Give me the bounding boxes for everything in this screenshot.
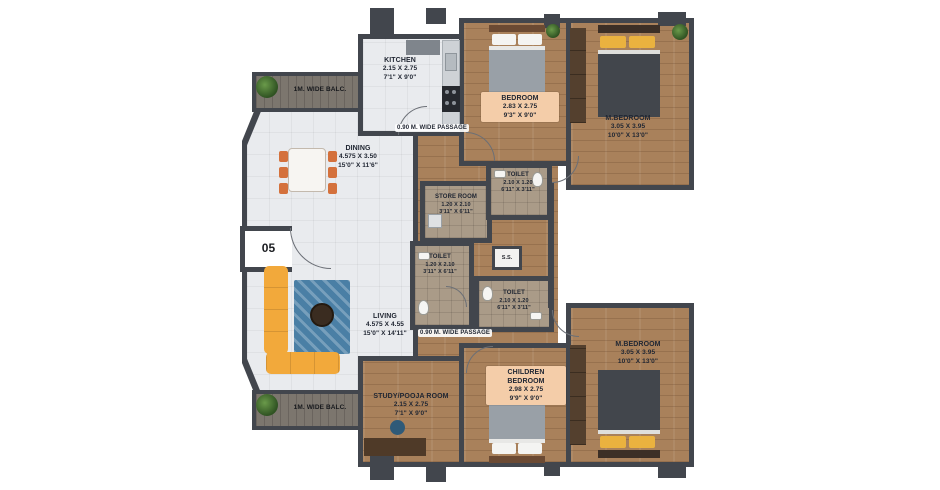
bed-headboard	[489, 25, 545, 32]
room-dim-imperial: 9'3" X 9'0"	[484, 112, 556, 120]
room-dim-imperial: 6'11" X 3'11"	[490, 187, 546, 194]
room-dim-metric: 2.98 X 2.75	[489, 386, 563, 394]
wall-stub	[370, 8, 394, 38]
room-dim-imperial: 6'11" X 3'11"	[486, 305, 542, 312]
room-dim-imperial: 7'1" X 9'0"	[360, 410, 462, 418]
coffee-table	[310, 303, 334, 327]
bed-headboard	[598, 25, 660, 33]
study-chair	[390, 420, 405, 435]
kitchen-appliance	[406, 40, 440, 55]
room-dim-metric: 1.20 X 2.10	[412, 262, 468, 269]
room-name: TOILET	[412, 254, 468, 262]
sofa	[264, 266, 288, 354]
label-toilet-top: TOILET 2.10 X 1.20 6'11" X 3'11"	[490, 172, 546, 194]
wall-segment	[548, 183, 554, 308]
wall-stub	[544, 462, 560, 476]
burner-icon	[445, 101, 449, 105]
floor-plan-canvas: S.S. 05	[0, 0, 940, 490]
burner-icon	[452, 90, 456, 94]
room-name: BEDROOM	[484, 94, 556, 103]
pillow	[629, 436, 655, 448]
room-name: LIVING	[348, 312, 422, 321]
bed-headboard	[598, 450, 660, 458]
dining-chair	[279, 151, 288, 162]
pillow	[518, 34, 542, 45]
room-name: M.BEDROOM	[588, 114, 668, 123]
room-dim-metric: 4.575 X 3.50	[320, 153, 396, 161]
room-dim-metric: 4.575 X 4.55	[348, 321, 422, 329]
label-passage-top: 0.90 M. WIDE PASSAGE	[392, 123, 472, 133]
room-dim-metric: 2.10 X 1.20	[486, 298, 542, 305]
room-name: M.BEDROOM	[598, 340, 678, 349]
plant-icon	[672, 24, 688, 40]
room-dim-imperial: 9'9" X 9'0"	[489, 395, 563, 403]
pillow	[492, 443, 516, 454]
dining-chair	[279, 167, 288, 178]
pillow	[492, 34, 516, 45]
pillow	[629, 36, 655, 48]
room-dim-metric: 1.20 X 2.10	[424, 202, 488, 209]
label-balcony-bottom: 1M. WIDE BALC.	[276, 404, 364, 412]
dining-chair	[279, 183, 288, 194]
room-dim-imperial: 15'0" X 11'6"	[320, 162, 396, 170]
room-dim-metric: 3.05 X 3.95	[598, 349, 678, 357]
room-dim-imperial: 10'0" X 13'0"	[598, 358, 678, 366]
label-study-pooja: STUDY/POOJA ROOM 2.15 X 2.75 7'1" X 9'0"	[360, 392, 462, 418]
entrance-lobby: 05	[240, 226, 292, 272]
service-shaft: S.S.	[492, 246, 522, 270]
bed	[598, 370, 660, 434]
pillow	[600, 36, 626, 48]
room-name: DINING	[320, 144, 396, 153]
wardrobe	[570, 28, 586, 123]
room-name: CHILDREN BEDROOM	[489, 368, 563, 386]
room-dim-imperial: 7'1" X 9'0"	[364, 74, 436, 82]
plant-icon	[256, 394, 278, 416]
bed-headboard	[489, 456, 545, 463]
label-store-room: STORE ROOM 1.20 X 2.10 3'11" X 6'11"	[424, 194, 488, 216]
label-master-bedroom-bottom: M.BEDROOM 3.05 X 3.95 10'0" X 13'0"	[598, 340, 678, 366]
room-name: STUDY/POOJA ROOM	[360, 392, 462, 401]
plant-icon	[256, 76, 278, 98]
unit-number: 05	[262, 241, 276, 257]
wall-stub	[426, 466, 446, 482]
room-dim-imperial: 3'11" X 6'11"	[412, 269, 468, 276]
kitchen-sink	[445, 53, 457, 71]
room-dim-metric: 2.10 X 1.20	[490, 180, 546, 187]
shaft-label: S.S.	[502, 255, 512, 261]
bed	[598, 50, 660, 117]
label-kitchen: KITCHEN 2.15 X 2.75 7'1" X 9'0"	[364, 56, 436, 82]
label-toilet-bottom: TOILET 2.10 X 1.20 6'11" X 3'11"	[486, 290, 542, 312]
room-name: KITCHEN	[364, 56, 436, 65]
wall-stub	[426, 8, 446, 24]
pillow	[600, 436, 626, 448]
study-desk	[364, 438, 426, 456]
label-passage-bottom: 0.90 M. WIDE PASSAGE	[415, 328, 495, 338]
wardrobe	[570, 345, 586, 445]
dining-chair	[328, 183, 337, 194]
label-living: LIVING 4.575 X 4.55 15'0" X 14'11"	[348, 312, 422, 338]
room-dim-metric: 2.15 X 2.75	[364, 65, 436, 73]
passage-text: 0.90 M. WIDE PASSAGE	[418, 329, 492, 337]
burner-icon	[452, 101, 456, 105]
room-dim-imperial: 10'0" X 13'0"	[588, 132, 668, 140]
wall-stub	[658, 464, 686, 478]
wash-basin	[530, 312, 542, 320]
room-dim-imperial: 15'0" X 14'11"	[348, 330, 422, 338]
passage-text: 0.90 M. WIDE PASSAGE	[395, 124, 469, 132]
washing-machine	[428, 214, 442, 228]
stove	[442, 86, 460, 112]
label-balcony-top: 1M. WIDE BALC.	[276, 86, 364, 94]
sofa	[266, 352, 340, 374]
burner-icon	[445, 90, 449, 94]
room-name: TOILET	[486, 290, 542, 298]
label-toilet-middle: TOILET 1.20 X 2.10 3'11" X 6'11"	[412, 254, 468, 276]
room-dim-metric: 3.05 X 3.95	[588, 123, 668, 131]
label-bedroom-top: BEDROOM 2.83 X 2.75 9'3" X 9'0"	[481, 92, 559, 122]
room-name: TOILET	[490, 172, 546, 180]
label-dining: DINING 4.575 X 3.50 15'0" X 11'6"	[320, 144, 396, 170]
room-dim-metric: 2.15 X 2.75	[360, 401, 462, 409]
label-master-bedroom-top: M.BEDROOM 3.05 X 3.95 10'0" X 13'0"	[588, 114, 668, 140]
label-children-bedroom: CHILDREN BEDROOM 2.98 X 2.75 9'9" X 9'0"	[486, 366, 566, 405]
plant-icon	[546, 24, 560, 38]
room-name: STORE ROOM	[424, 194, 488, 202]
pillow	[518, 443, 542, 454]
room-dim-imperial: 3'11" X 6'11"	[424, 209, 488, 216]
room-dim-metric: 2.83 X 2.75	[484, 103, 556, 111]
wall-stub	[370, 454, 394, 480]
